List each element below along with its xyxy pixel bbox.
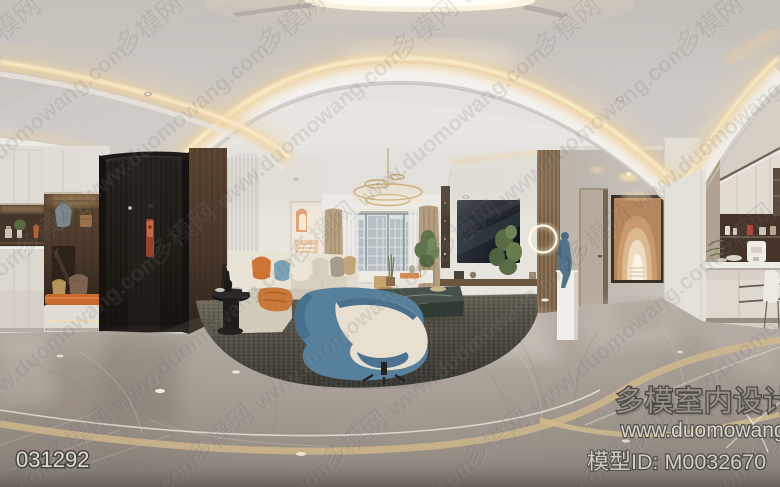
- svg-text:ID: M0032670: ID: M0032670: [631, 450, 766, 474]
- svg-text:031292: 031292: [16, 447, 89, 472]
- svg-text:www.duomowang: www.duomowang: [620, 419, 780, 442]
